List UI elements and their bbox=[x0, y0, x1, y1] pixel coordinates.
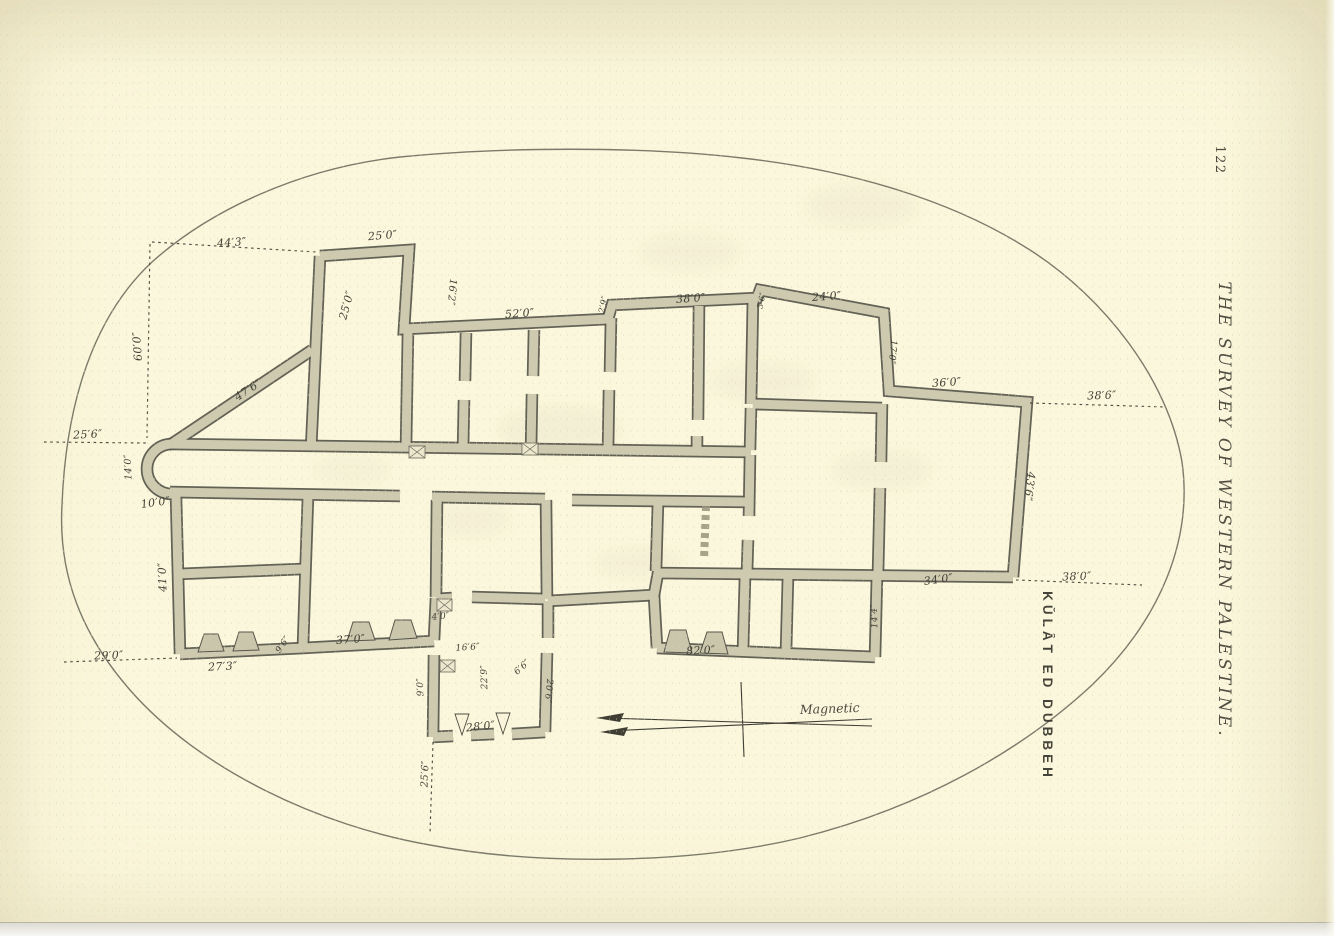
dimension-label: 14′0″ bbox=[123, 454, 135, 480]
dimension-label: 6′6″ bbox=[512, 657, 533, 677]
dimension-label: 16′6″ bbox=[455, 642, 480, 654]
dimension-label: 22′9″ bbox=[480, 664, 491, 690]
compass-label: Magnetic bbox=[799, 700, 860, 717]
dimension-label: 27′3″ bbox=[207, 659, 239, 674]
page-right-edge bbox=[1325, 0, 1334, 936]
dimension-label: 37′0″ bbox=[336, 632, 367, 647]
dimension-label: 38′6″ bbox=[1087, 388, 1118, 402]
dimension-label: 36′0″ bbox=[932, 375, 963, 390]
dimension-label: 25′0″ bbox=[366, 228, 398, 244]
running-title: THE SURVEY OF WESTERN PALESTINE. bbox=[1214, 281, 1234, 738]
dimension-label: 38′0″ bbox=[1062, 569, 1093, 583]
dimension-label: 9′0″ bbox=[416, 677, 427, 696]
plan-drawing: 44′3″25′0″25′0″16′2″60′0″47′6″52′0″2′9″3… bbox=[0, 0, 1334, 936]
magnetic-north-arrow: Magnetic bbox=[596, 682, 872, 757]
dimension-label: 4′0″ bbox=[430, 611, 451, 623]
dimension-label: 44′3″ bbox=[216, 235, 248, 250]
dimension-label: 16′2″ bbox=[445, 278, 458, 306]
dimension-label: 14′4″ bbox=[870, 603, 881, 628]
walls-fill bbox=[147, 250, 1027, 737]
dimension-label: 29′0″ bbox=[93, 648, 125, 662]
dimension-labels: 44′3″25′0″25′0″16′2″60′0″47′6″52′0″2′9″3… bbox=[72, 228, 1118, 789]
dimension-label: 10′0″ bbox=[140, 494, 172, 511]
dimension-label: 25′0″ bbox=[336, 289, 357, 322]
dimension-label: 24′0″ bbox=[811, 289, 843, 304]
dimension-label: 25′6″ bbox=[419, 760, 431, 788]
plan-title: KŬLÂT ED DUBBEH bbox=[1040, 591, 1055, 781]
dimension-label: 38′0″ bbox=[676, 291, 707, 306]
dimension-label: 41′0″ bbox=[155, 562, 169, 594]
dimension-label: 34′0″ bbox=[923, 571, 955, 588]
dimension-label: 82′0″ bbox=[686, 643, 717, 658]
dimension-label: 52′0″ bbox=[505, 306, 536, 321]
dimension-label: 60′0″ bbox=[130, 331, 145, 362]
ruined-wall-dashed bbox=[704, 506, 706, 560]
dimension-label: 25′6″ bbox=[72, 427, 104, 442]
page-bottom-edge bbox=[0, 922, 1334, 936]
page-number: 122 bbox=[1212, 145, 1227, 174]
